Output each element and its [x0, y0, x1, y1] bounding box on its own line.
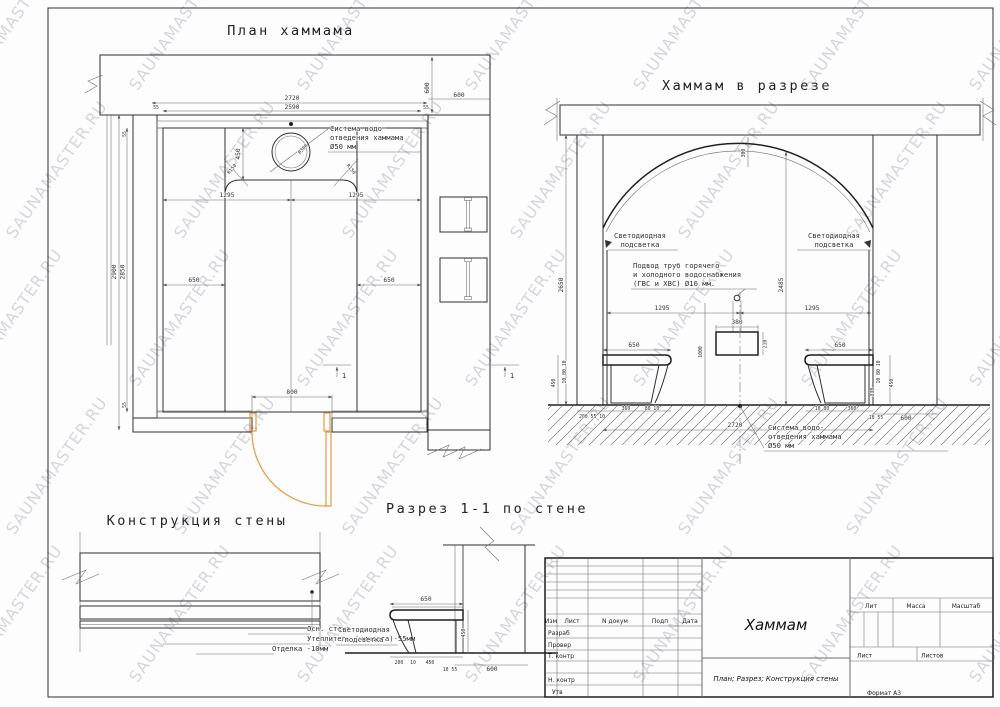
svg-text:55: 55	[153, 105, 159, 111]
svg-text:330: 330	[870, 388, 876, 397]
break-symbol	[480, 527, 499, 561]
svg-text:2650: 2650	[558, 277, 565, 292]
plan-right-wall	[428, 115, 490, 430]
svg-text:360: 360	[848, 406, 857, 412]
plan-insulation	[157, 121, 427, 418]
svg-text:55: 55	[122, 131, 128, 137]
svg-text:10 80 10: 10 80 10	[876, 360, 882, 383]
plan-left-wall	[133, 115, 157, 418]
section-dimensions: 300 2650 2485 1295 1295 380 210 1000 650…	[551, 135, 937, 430]
svg-text:1295: 1295	[805, 305, 820, 312]
svg-text:1295: 1295	[220, 192, 235, 199]
ws-bench	[390, 607, 463, 653]
title-block-right: Лит Масса Масштаб Лист Листов	[857, 603, 981, 660]
title-block-headers: Изм Лист N докум Подп Дата	[545, 618, 698, 625]
svg-text:10: 10	[410, 660, 416, 666]
section-view: Хаммам в разрезе Светодиодная подсветка …	[544, 78, 996, 465]
svg-text:1000: 1000	[698, 346, 704, 358]
plan-dimensions: 2720 2590 55 55 600 600 2900 2850 55 55 …	[111, 57, 490, 430]
svg-text:380: 380	[731, 319, 742, 326]
svg-text:650: 650	[383, 277, 394, 284]
svg-text:450: 450	[889, 379, 895, 388]
ws-wall	[463, 545, 525, 653]
plan-bottom-wall-left	[133, 418, 252, 432]
document-subtitle: План; Разрез; Конструкция стены	[713, 675, 839, 683]
svg-text:Т. контр: Т. контр	[547, 653, 574, 660]
format-label: Формат А3	[867, 690, 901, 697]
plan-right-wall-stub	[428, 430, 490, 450]
svg-text:650: 650	[834, 342, 845, 349]
svg-text:600: 600	[486, 666, 497, 673]
wall-detail-title: Конструкция стены	[107, 513, 288, 529]
title-block: Изм Лист N докум Подп Дата Разраб Провер…	[545, 558, 993, 697]
svg-text:R150: R150	[345, 163, 357, 176]
svg-text:Утв: Утв	[552, 689, 563, 696]
led-strip-left	[605, 240, 612, 248]
section-ceiling	[560, 105, 980, 135]
led-note-right: Светодиодная подсветка	[797, 231, 871, 250]
svg-text:Отделка -10мм: Отделка -10мм	[272, 644, 329, 653]
svg-text:1: 1	[342, 371, 346, 380]
break-symbol	[980, 101, 996, 125]
svg-text:Подвод труб горячего: Подвод труб горячего	[633, 261, 720, 270]
svg-text:650: 650	[188, 277, 199, 284]
svg-text:Масштаб: Масштаб	[952, 603, 981, 610]
svg-text:Светодиодная: Светодиодная	[614, 231, 666, 240]
section-cut-mark: 1	[491, 365, 519, 380]
svg-text:10 80: 10 80	[815, 406, 830, 412]
document-title: Хаммам	[744, 616, 808, 634]
wall-section-title: Разрез 1-1 по стене	[386, 501, 588, 517]
svg-text:1295: 1295	[655, 305, 670, 312]
svg-text:Разраб: Разраб	[548, 630, 570, 637]
pipe-note: Подвод труб горячего и холодного водосна…	[631, 261, 757, 295]
svg-text:отведения хаммама: отведения хаммама	[330, 133, 404, 142]
svg-text:Н. контр: Н. контр	[548, 677, 575, 684]
svg-text:R150: R150	[226, 163, 238, 176]
svg-text:Подп: Подп	[652, 618, 668, 625]
section-left-wall	[577, 135, 603, 405]
led-strip-right	[864, 240, 871, 248]
svg-text:2850: 2850	[120, 264, 127, 279]
svg-text:10 80 10: 10 80 10	[562, 360, 568, 383]
svg-text:650: 650	[628, 342, 639, 349]
svg-text:450: 450	[235, 148, 242, 159]
svg-text:Листов: Листов	[921, 653, 944, 660]
svg-text:Провер: Провер	[548, 642, 571, 649]
plan-title: План хаммама	[227, 23, 355, 39]
svg-text:Ø50 мм: Ø50 мм	[768, 441, 795, 450]
svg-text:600: 600	[900, 415, 911, 422]
svg-text:800: 800	[286, 389, 297, 396]
svg-text:1: 1	[510, 371, 514, 380]
svg-text:Система водо-: Система водо-	[330, 124, 386, 133]
section-bench-right	[805, 355, 873, 403]
svg-text:Система водо-: Система водо-	[768, 423, 824, 432]
svg-text:360: 360	[622, 406, 631, 412]
svg-text:2485: 2485	[778, 277, 785, 292]
svg-text:450: 450	[426, 660, 435, 666]
section-cut-mark: 1	[323, 365, 351, 380]
svg-text:600: 600	[424, 82, 431, 93]
title-block-rows: Разраб Провер Т. контр Н. контр Утв	[547, 630, 575, 696]
plan-drain: Ø300	[270, 122, 328, 172]
svg-text:200 55 10: 200 55 10	[579, 414, 605, 420]
svg-text:Светодиодная: Светодиодная	[808, 231, 860, 240]
svg-text:Масса: Масса	[906, 603, 925, 610]
svg-text:300: 300	[741, 149, 747, 158]
svg-text:и холодного водоснабжения: и холодного водоснабжения	[633, 270, 741, 279]
svg-text:отведения хаммама: отведения хаммама	[768, 432, 842, 441]
svg-text:(ГВС и ХВС) Ø16 мм.: (ГВС и ХВС) Ø16 мм.	[633, 279, 715, 288]
svg-text:210: 210	[763, 340, 769, 349]
svg-text:2720: 2720	[728, 422, 743, 429]
svg-text:200: 200	[395, 660, 404, 666]
svg-text:Дата: Дата	[682, 618, 698, 625]
plan-wall-niches	[440, 197, 487, 302]
svg-text:650: 650	[420, 596, 431, 603]
svg-text:Лит: Лит	[865, 603, 877, 610]
break-symbol	[427, 445, 481, 459]
svg-text:Лист: Лист	[564, 618, 580, 625]
svg-text:10 55: 10 55	[869, 415, 884, 421]
svg-text:2720: 2720	[285, 95, 300, 102]
plan-door	[250, 413, 331, 506]
sheet-frame	[48, 8, 993, 697]
break-symbol	[544, 101, 560, 125]
svg-text:Лист: Лист	[857, 653, 873, 660]
svg-text:450: 450	[551, 379, 557, 388]
plan-view: План хаммама	[85, 23, 519, 506]
svg-text:80 10: 80 10	[645, 406, 660, 412]
svg-text:подсветка: подсветка	[621, 240, 660, 249]
svg-text:55: 55	[122, 402, 128, 408]
cad-drawing: План хаммама	[0, 0, 1000, 707]
wall-base-layer	[80, 553, 320, 601]
drawing-sheet: SAUNAMASTER.RUSAUNAMASTER.RUSAUNAMASTER.…	[0, 0, 1000, 707]
svg-text:2590: 2590	[285, 104, 300, 111]
section-bench-left	[603, 355, 671, 403]
plan-bottom-wall-right	[332, 418, 427, 432]
svg-text:10 55: 10 55	[443, 667, 458, 673]
svg-text:600: 600	[453, 92, 464, 99]
svg-text:подсветка: подсветка	[345, 635, 384, 644]
svg-text:1295: 1295	[349, 192, 364, 199]
svg-text:450: 450	[461, 629, 467, 638]
svg-text:подсветка: подсветка	[815, 240, 854, 249]
svg-text:2900: 2900	[111, 264, 118, 279]
section-title: Хаммам в разрезе	[662, 78, 832, 94]
svg-text:Светодиодная: Светодиодная	[338, 625, 390, 634]
wall-insulation-layer	[80, 606, 320, 619]
svg-text:N докум: N докум	[602, 618, 628, 625]
svg-text:55: 55	[423, 105, 429, 111]
led-note-left: Светодиодная подсветка	[608, 231, 678, 250]
section-stool	[716, 332, 758, 355]
svg-text:Ø50 мм: Ø50 мм	[330, 142, 357, 151]
section-right-wall	[873, 135, 937, 405]
svg-text:Изм: Изм	[545, 618, 557, 625]
